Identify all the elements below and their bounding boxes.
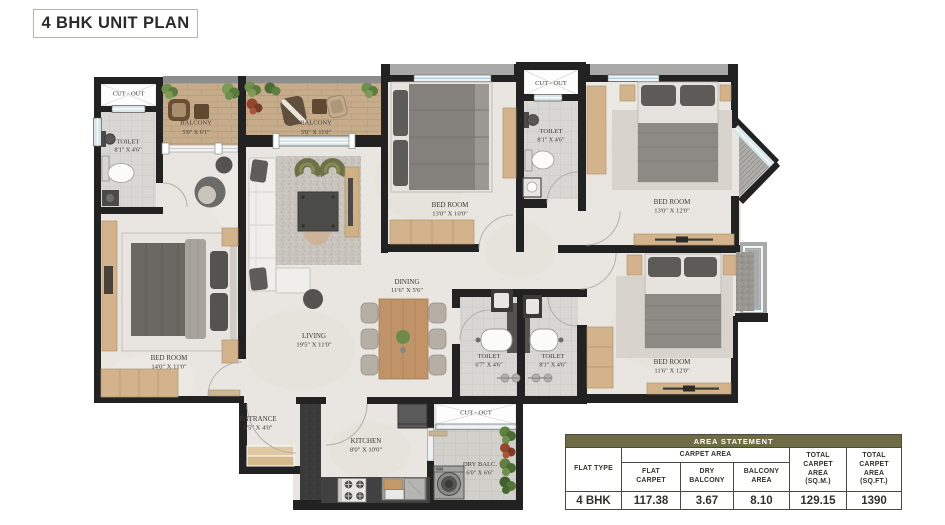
svg-text:BALCONY: BALCONY — [300, 120, 332, 127]
svg-text:14'0" X 11'0": 14'0" X 11'0" — [151, 364, 187, 371]
svg-text:BED ROOM: BED ROOM — [654, 198, 692, 206]
svg-text:BED ROOM: BED ROOM — [432, 201, 470, 209]
svg-text:DINING: DINING — [395, 278, 420, 286]
svg-text:19'5" X 11'0": 19'5" X 11'0" — [296, 342, 332, 349]
svg-text:8'1" X 4'6": 8'1" X 4'6" — [114, 147, 142, 154]
svg-text:TOILET: TOILET — [478, 353, 501, 360]
svg-text:11'6" X 12'0": 11'6" X 12'0" — [654, 368, 690, 375]
svg-text:CUT - OUT: CUT - OUT — [535, 80, 567, 87]
svg-text:6'7" X 4'6": 6'7" X 4'6" — [475, 362, 503, 369]
svg-text:BED ROOM: BED ROOM — [654, 358, 692, 366]
svg-text:TOILET: TOILET — [540, 128, 563, 135]
svg-text:BALCONY: BALCONY — [180, 120, 212, 127]
svg-text:13'0" X 12'0": 13'0" X 12'0" — [654, 208, 690, 215]
svg-text:11'6" X 5'6": 11'6" X 5'6" — [391, 287, 423, 294]
svg-text:LIVING: LIVING — [302, 332, 326, 340]
svg-text:BED ROOM: BED ROOM — [151, 354, 189, 362]
svg-text:TOILET: TOILET — [542, 353, 565, 360]
svg-text:CUT - OUT: CUT - OUT — [113, 91, 145, 98]
svg-text:DRY BALC.: DRY BALC. — [463, 461, 498, 468]
svg-text:8'1" X 4'6": 8'1" X 4'6" — [539, 362, 567, 369]
svg-text:5'5" X 4'0": 5'5" X 4'0" — [243, 425, 272, 432]
svg-text:5'0" X 11'0": 5'0" X 11'0" — [301, 129, 332, 136]
svg-text:8'1" X 4'6": 8'1" X 4'6" — [537, 137, 565, 144]
svg-text:6'0" X 6'6": 6'0" X 6'6" — [466, 470, 494, 477]
svg-text:TOILET: TOILET — [117, 139, 140, 146]
svg-text:5'0" X 6'1": 5'0" X 6'1" — [182, 129, 210, 136]
svg-text:13'0" X 10'0": 13'0" X 10'0" — [432, 211, 468, 218]
svg-text:CUT - OUT: CUT - OUT — [460, 410, 492, 417]
svg-text:KITCHEN: KITCHEN — [351, 437, 382, 445]
svg-text:ENTRANCE: ENTRANCE — [239, 415, 276, 423]
svg-text:8'0" X 10'0": 8'0" X 10'0" — [350, 447, 383, 454]
